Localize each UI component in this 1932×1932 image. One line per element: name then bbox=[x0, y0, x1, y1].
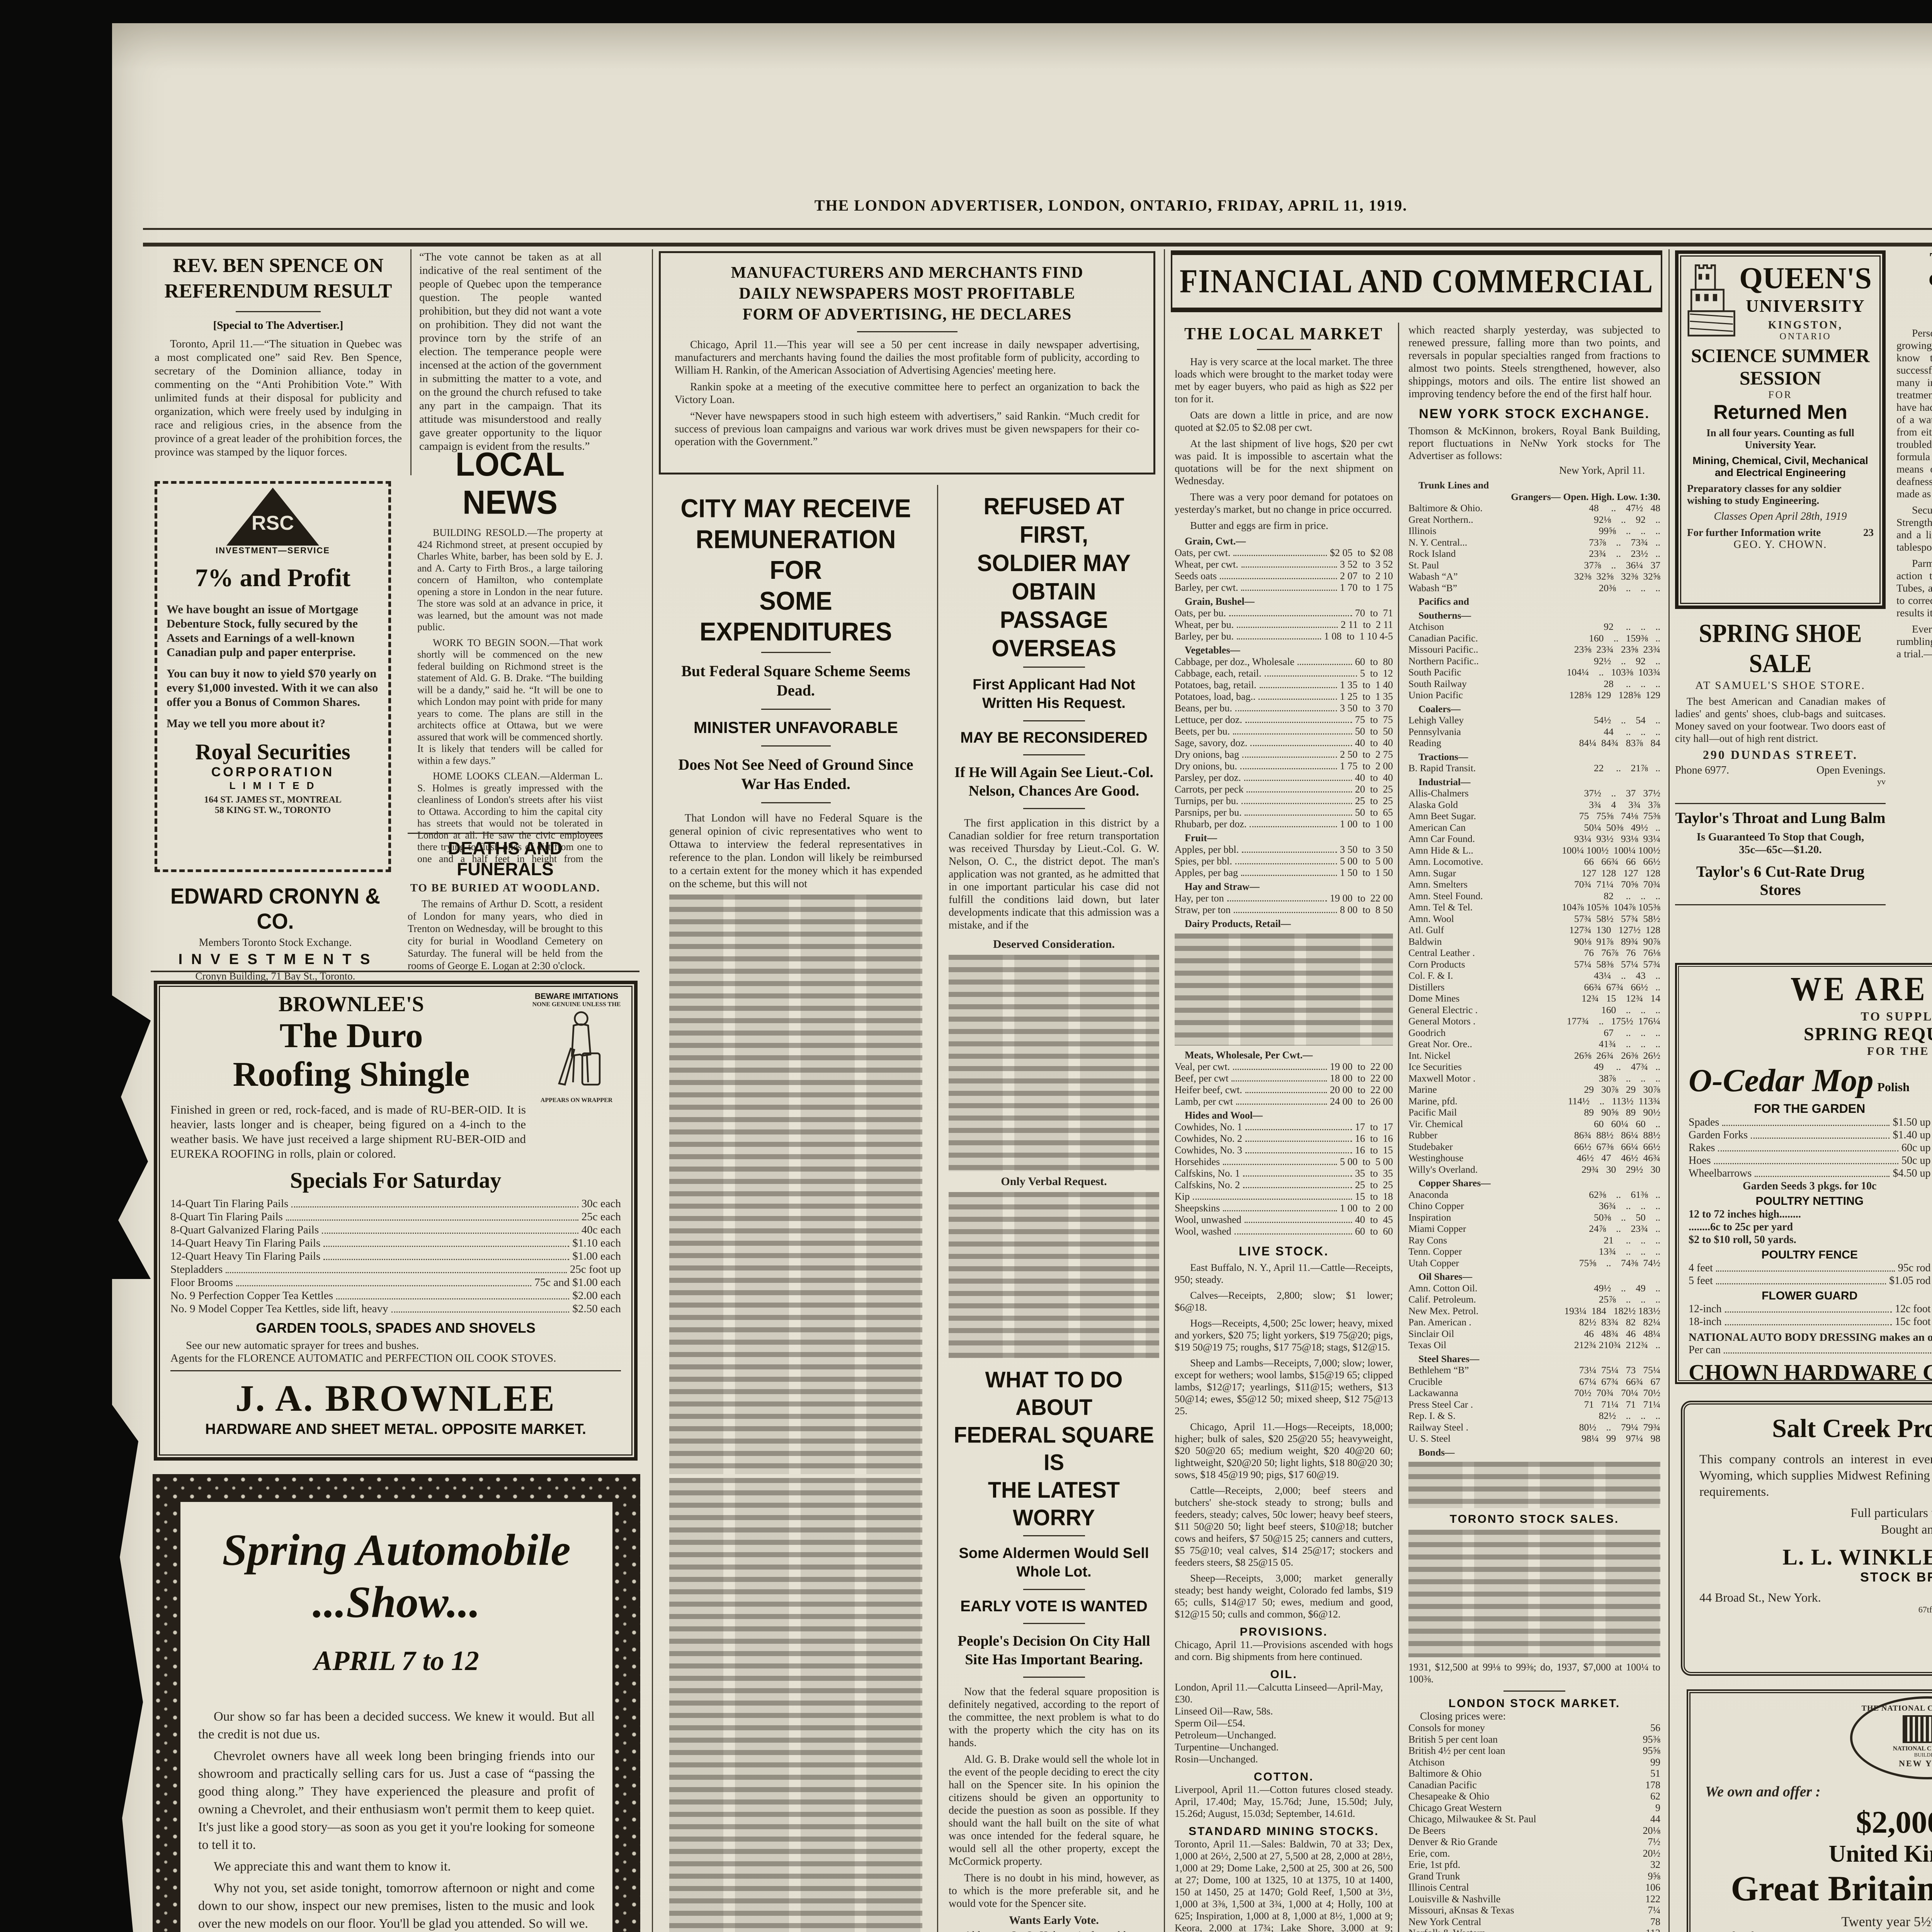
local-market-title: THE LOCAL MARKET bbox=[1175, 324, 1393, 344]
list-item: Linseed Oil—Raw, 58s. bbox=[1175, 1705, 1393, 1717]
subhead: MINISTER UNFAVORABLE bbox=[669, 718, 922, 737]
list-item: Chesapeake & Ohio62 bbox=[1408, 1791, 1660, 1802]
ad-line: Bought and Sold. bbox=[1699, 1523, 1932, 1537]
ad-line: Preparatory classes for any soldier wish… bbox=[1687, 483, 1874, 507]
list-item: Copper Shares— bbox=[1408, 1177, 1660, 1189]
article-catarrh: TO RELIEVE CATARRH, CATARRHAL DEAFNESS A… bbox=[1896, 248, 1932, 957]
ad-headline: Salt Creek Producers Ass'n bbox=[1699, 1413, 1932, 1444]
ad-line: ONTARIO bbox=[1737, 332, 1874, 342]
seal-text: NEW YORK bbox=[1852, 1759, 1932, 1769]
article-text: That London will have no Federal Square … bbox=[669, 812, 922, 891]
london-market-title: LONDON STOCK MARKET. bbox=[1408, 1697, 1660, 1710]
list-item: BUILDING RESOLD.—The property at 424 Ric… bbox=[417, 527, 603, 633]
greeked-text bbox=[949, 1192, 1159, 1358]
list-item: Erie, 1st pfd.32 bbox=[1408, 1859, 1660, 1871]
list-item: St. Paul37⅞ .. 36¼ 37 bbox=[1408, 560, 1660, 571]
financial-banner: FINANCIAL AND COMMERCIAL bbox=[1171, 250, 1662, 312]
list-item: Sage, savory, doz.40 to 40 bbox=[1175, 737, 1393, 749]
ad-line: Dated February 1st, 1917. bbox=[1705, 1930, 1838, 1932]
list-item: Cabbage, per doz., Wholesale60 to 80 bbox=[1175, 656, 1393, 668]
ad-headline: ...Show... bbox=[198, 1575, 595, 1629]
specials-list: 14-Quart Tin Flaring Pails30c each8-Quar… bbox=[170, 1197, 621, 1315]
list-item: Grangers— Open. High. Low. 1:30. bbox=[1408, 491, 1660, 503]
list-item: American Can50¼ 50⅜ 49½ .. bbox=[1408, 822, 1660, 833]
rule bbox=[1023, 808, 1085, 809]
livestock-title: LIVE STOCK. bbox=[1175, 1244, 1393, 1259]
list-item: Studebaker66½ 67⅜ 66¼ 66½ bbox=[1408, 1141, 1660, 1153]
ad-headline: United Kingdom of bbox=[1705, 1840, 1932, 1868]
list-item: Denver & Rio Grande7½ bbox=[1408, 1836, 1660, 1848]
list-item: Rep. I. & S.82½ .. .. .. bbox=[1408, 1410, 1660, 1422]
badge-line: APPEARS ON WRAPPER bbox=[532, 1097, 621, 1104]
garden-list: Spades$1.50 upGarden Forks$1.40 upRakes6… bbox=[1689, 1116, 1930, 1192]
ad-address: 44 Broad St., New York. bbox=[1699, 1590, 1821, 1605]
article-rev-ben-spence: REV. BEN SPENCE ON REFERENDUM RESULT [Sp… bbox=[155, 253, 402, 459]
list-item: Atchison92 .. .. .. bbox=[1408, 621, 1660, 633]
ad-line: TO SUPPLY YOUR bbox=[1689, 1009, 1932, 1024]
article-text: Now that the federal square proposition … bbox=[949, 1685, 1159, 1910]
dots bbox=[1724, 1344, 1932, 1354]
list-item: Amn. Steel Found.82 .. .. .. bbox=[1408, 890, 1660, 902]
market-intro: Hay is very scarce at the local market. … bbox=[1175, 355, 1393, 532]
ad-line: GARDEN TOOLS, SPADES AND SHOVELS bbox=[170, 1320, 621, 1336]
local-news-items: BUILDING RESOLD.—The property at 424 Ric… bbox=[417, 527, 603, 864]
list-item: South Railway28 .. .. .. bbox=[1408, 678, 1660, 690]
ad-subhead: STOCK BROKERS bbox=[1699, 1570, 1932, 1585]
list-item: Union Pacific128⅝ 129 128⅝ 129 bbox=[1408, 689, 1660, 701]
list-item: London, April 11.—Calcutta Linseed—April… bbox=[1175, 1681, 1393, 1705]
deaths-title: DEATHS AND FUNERALS bbox=[408, 838, 603, 879]
list-item: Distillers66¾ 67¾ 66½ .. bbox=[1408, 981, 1660, 993]
seal-text: THE NATIONAL CITY COMPANY bbox=[1852, 1704, 1932, 1713]
list-item: Chevrolet owners have all week long been… bbox=[198, 1747, 595, 1854]
list-item: Cabbage, each, retail.5 to 12 bbox=[1175, 668, 1393, 679]
section-title: LOCAL NEWS bbox=[417, 446, 603, 522]
rule bbox=[236, 311, 321, 312]
deck: Does Not See Need of Ground Since War Ha… bbox=[669, 755, 922, 794]
headline: CATARRHAL DEAFNESS bbox=[1896, 269, 1932, 291]
rule bbox=[408, 833, 603, 834]
list-item: Grain, Bushel— bbox=[1175, 596, 1393, 607]
list-item: Sheep and Lambs—Receipts, 7,000; slow; l… bbox=[1175, 1357, 1393, 1417]
ad-phone: Phone 6977. bbox=[1675, 764, 1729, 777]
list-item: South Pacific104¼ .. 103⅜ 103¾ bbox=[1408, 667, 1660, 678]
ad-headline: SCIENCE SUMMER SESSION bbox=[1687, 344, 1874, 389]
ad-code: yv bbox=[1675, 777, 1886, 787]
headline: PASSAGE OVERSEAS bbox=[949, 606, 1159, 663]
list-item: Straw, per ton8 00 to 8 50 bbox=[1175, 904, 1393, 916]
ad-auto-show: Spring Automobile ...Show... APRIL 7 to … bbox=[153, 1474, 640, 1932]
list-item: Pan. American .82½ 83¾ 82 82¼ bbox=[1408, 1316, 1660, 1328]
subhead: MAY BE RECONSIDERED bbox=[949, 729, 1159, 747]
london-market-intro: Closing prices were: bbox=[1408, 1710, 1660, 1722]
ad-line: In all four years. Counting as full Univ… bbox=[1687, 427, 1874, 451]
list-item: Dry onions, bag2 50 to 2 75 bbox=[1175, 749, 1393, 760]
list-item: Hay is very scarce at the local market. … bbox=[1175, 355, 1393, 405]
deck: But Federal Square Scheme Seems Dead. bbox=[669, 662, 922, 700]
mining-text: Toronto, April 11.—Sales: Baldwin, 70 at… bbox=[1175, 1838, 1393, 1932]
list-item: Wool, unwashed40 to 45 bbox=[1175, 1214, 1393, 1226]
ad-line: We own and offer : bbox=[1705, 1783, 1932, 1800]
list-item: Apples, per bbl.3 50 to 3 50 bbox=[1175, 844, 1393, 855]
guard-list: 12-inch12c foot18-inch15c foot bbox=[1689, 1303, 1930, 1328]
list-item: Cowhides, No. 216 to 16 bbox=[1175, 1133, 1393, 1145]
list-item: Cattle—Receipts, 2,000; beef steers and … bbox=[1175, 1485, 1393, 1568]
nyse-intro: Thomson & McKinnon, brokers, Royal Bank … bbox=[1408, 425, 1660, 462]
seal-text: BUILDING bbox=[1852, 1752, 1932, 1759]
list-item: 14-Quart Tin Flaring Pails30c each bbox=[170, 1197, 621, 1210]
oil-title: OIL. bbox=[1175, 1668, 1393, 1681]
ad-line: Open Evenings. bbox=[1816, 764, 1886, 777]
list-item: Coalers— bbox=[1408, 703, 1660, 715]
headline: SOME EXPENDITURES bbox=[669, 585, 922, 647]
list-item: Allis-Chalmers37½ .. 37 37½ bbox=[1408, 787, 1660, 799]
list-item: Cowhides, No. 316 to 15 bbox=[1175, 1145, 1393, 1156]
divider bbox=[1398, 323, 1399, 1932]
cotton-title: COTTON. bbox=[1175, 1770, 1393, 1784]
list-item: Canadian Pacific.160 .. 159⅜ .. bbox=[1408, 633, 1660, 644]
rule bbox=[170, 1370, 621, 1371]
deaths-body: The remains of Arthur D. Scott, a reside… bbox=[408, 898, 603, 972]
list-item: Chicago Great Western9 bbox=[1408, 1802, 1660, 1814]
list-item: Ray Cons21 .. .. .. bbox=[1408, 1235, 1660, 1246]
list-item: Oats are down a little in price, and are… bbox=[1175, 409, 1393, 434]
list-item: Tenn. Copper13¾ .. .. .. bbox=[1408, 1246, 1660, 1257]
list-item: Northern Pacific..92½ .. 92 .. bbox=[1408, 655, 1660, 667]
list-item: Chicago, Milwaukee & St. Paul44 bbox=[1408, 1813, 1660, 1825]
article-text: Toronto, April 11.—“The situation in Que… bbox=[155, 337, 402, 459]
rule bbox=[1257, 349, 1311, 350]
newspaper-page: THE LONDON ADVERTISER, LONDON, ONTARIO, … bbox=[0, 0, 1932, 1932]
list-item: Marine, pfd.114½ .. 113½ 113¾ bbox=[1408, 1095, 1660, 1107]
rsc-logo-text: RSC bbox=[252, 512, 294, 535]
list-item: No. 9 Perfection Copper Tea Kettles$2.00… bbox=[170, 1289, 621, 1302]
list-item: Bethlehem “B”73¼ 75¼ 73 75¼ bbox=[1408, 1364, 1660, 1376]
list-item: Ice Securities49 .. 47¾ .. bbox=[1408, 1061, 1660, 1073]
ad-address: 290 DUNDAS STREET. bbox=[1675, 748, 1886, 762]
ad-line: KINGSTON, bbox=[1737, 319, 1874, 332]
list-item: Garden Seeds 3 pkgs. for 10c bbox=[1689, 1180, 1930, 1192]
greeked-text bbox=[949, 955, 1159, 1171]
list-item: General Electric .160 .. .. .. bbox=[1408, 1004, 1660, 1016]
ad-taylors: Taylor's Throat and Lung Balm Is Guarant… bbox=[1675, 803, 1886, 905]
list-item: At the last shipment of live hogs, $20 p… bbox=[1175, 437, 1393, 487]
list-item: Wheat, per bu.2 11 to 2 11 bbox=[1175, 619, 1393, 631]
section-local-news: LOCAL NEWS BUILDING RESOLD.—The property… bbox=[417, 447, 603, 864]
ad-line: CORPORATION bbox=[167, 765, 379, 780]
list-item: Chicago, April 11.—Hogs—Receipts, 18,000… bbox=[1175, 1421, 1393, 1481]
divider bbox=[1668, 249, 1670, 1932]
list-item: Rhubarb, per doz.1 00 to 1 00 bbox=[1175, 818, 1393, 830]
headline: DAILY NEWSPAPERS MOST PROFITABLE bbox=[675, 283, 1139, 304]
rule bbox=[1675, 904, 1886, 905]
toronto-sales-tail: 1931, $12,500 at 99⅛ to 99⅜; do, 1937, $… bbox=[1408, 1661, 1660, 1685]
list-item: Stepladders25c foot up bbox=[170, 1263, 621, 1276]
list-item: Hay and Straw— bbox=[1175, 881, 1393, 893]
list-item: Cowhides, No. 117 to 17 bbox=[1175, 1121, 1393, 1133]
greeked-text bbox=[1175, 934, 1393, 1046]
rsc-logo-sub: INVESTMENT—SERVICE bbox=[167, 546, 379, 556]
list-item: Wheat, per cwt.3 52 to 3 52 bbox=[1175, 559, 1393, 570]
list-item: Corn Products57¼ 58⅜ 57¼ 57¾ bbox=[1408, 959, 1660, 970]
rule bbox=[1023, 1535, 1085, 1536]
badge-line: NONE GENUINE UNLESS THE bbox=[532, 1001, 621, 1008]
list-item: Willy's Overland.29¾ 30 29½ 30 bbox=[1408, 1164, 1660, 1175]
provisions-text: Chicago, April 11.—Provisions ascended w… bbox=[1175, 1639, 1393, 1663]
list-item: Crucible67¼ 67¾ 66¾ 67 bbox=[1408, 1376, 1660, 1388]
fence-list: 4 feet95c rod5 feet$1.05 rod bbox=[1689, 1262, 1930, 1287]
list-item: $2 to $10 roll, 50 yards. bbox=[1689, 1233, 1930, 1246]
headline: REFERENDUM RESULT bbox=[155, 279, 402, 304]
ad-line: L I M I T E D bbox=[167, 780, 379, 792]
ad-brand-sub: Polish bbox=[1877, 1080, 1910, 1094]
list-item: Now that the federal square proposition … bbox=[949, 1685, 1159, 1749]
list-item: Atl. Gulf127¾ 130 127½ 128 bbox=[1408, 924, 1660, 936]
rule bbox=[761, 652, 831, 653]
list-item: Anaconda62⅜ .. 61⅜ .. bbox=[1408, 1189, 1660, 1201]
list-item: 12 to 72 inches high........ bbox=[1689, 1208, 1930, 1221]
list-item: Parsnips, per bu.50 to 65 bbox=[1175, 807, 1393, 818]
list-item: Canadian Pacific178 bbox=[1408, 1779, 1660, 1791]
list-item: Col. F. & I.43¼ .. 43 .. bbox=[1408, 970, 1660, 981]
list-item: Garden Forks$1.40 up bbox=[1689, 1129, 1930, 1141]
nyse-dateline: New York, April 11. bbox=[1408, 464, 1645, 476]
list-item: Wool, washed60 to 60 bbox=[1175, 1226, 1393, 1237]
list-item: Seeds oats2 07 to 2 10 bbox=[1175, 570, 1393, 582]
list-item: Baldwin90⅛ 91⅞ 89¾ 90⅞ bbox=[1408, 936, 1660, 947]
deaths-sub: TO BE BURIED AT WOODLAND. bbox=[408, 882, 603, 895]
rule bbox=[761, 802, 831, 803]
ad-chown-hardware: WE ARE READY TO SUPPLY YOUR SPRING REQUI… bbox=[1675, 963, 1932, 1384]
headline: REMUNERATION FOR bbox=[669, 524, 922, 585]
list-item: Great Nor. Ore..41¾ .. .. .. bbox=[1408, 1038, 1660, 1050]
list-item: “Never have newspapers stood in such hig… bbox=[675, 410, 1139, 448]
list-item: Baltimore & Ohio.48 .. 47½ 48 bbox=[1408, 502, 1660, 514]
list-item: Oats, per cwt.$2 05 to $2 08 bbox=[1175, 547, 1393, 559]
list-item: Oil Shares— bbox=[1408, 1271, 1660, 1282]
list-item: Great Northern..92⅛ .. 92 .. bbox=[1408, 514, 1660, 526]
list-item: Inspiration50⅜ .. 50 .. bbox=[1408, 1212, 1660, 1223]
deck: People's Decision On City Hall Site Has … bbox=[949, 1632, 1159, 1669]
list-item: Baltimore & Ohio51 bbox=[1408, 1768, 1660, 1779]
advertiser-name: Taylor's 6 Cut-Rate Drug Stores bbox=[1675, 862, 1886, 899]
section-head: FLOWER GUARD bbox=[1689, 1289, 1930, 1303]
subhead: EARLY VOTE IS WANTED bbox=[949, 1598, 1159, 1615]
list-item: Horsehides5 00 to 5 00 bbox=[1175, 1156, 1393, 1168]
advertiser-name: Royal Securities bbox=[167, 739, 379, 765]
list-item: Dry onions, bu.1 75 to 2 00 bbox=[1175, 760, 1393, 772]
rule bbox=[151, 971, 639, 972]
list-item: 5 feet$1.05 rod bbox=[1689, 1274, 1930, 1287]
list-item: Lackawanna70½ 70¾ 70¼ 70½ bbox=[1408, 1387, 1660, 1399]
list-item: Vegetables— bbox=[1175, 645, 1393, 656]
ruberoid-badge: BEWARE IMITATIONS NONE GENUINE UNLESS TH… bbox=[532, 992, 621, 1104]
list-item: Amn. Smelters70¾ 71¼ 70⅝ 70¾ bbox=[1408, 879, 1660, 890]
headline: CITY MAY RECEIVE bbox=[669, 497, 922, 524]
ad-queens-university: QUEEN'S UNIVERSITY KINGSTON, ONTARIO SCI… bbox=[1675, 250, 1886, 609]
list-item: Sinclair Oil46 48¾ 46 48¼ bbox=[1408, 1328, 1660, 1340]
ad-paragraph: We have bought an issue of Mortgage Debe… bbox=[167, 602, 379, 659]
chown-left-column: O-Cedar Mop Polish FOR THE GARDEN Spades… bbox=[1689, 1062, 1930, 1328]
list-item: General Motors .177¾ .. 175½ 176¼ bbox=[1408, 1015, 1660, 1027]
list-item: Spades$1.50 up bbox=[1689, 1116, 1930, 1129]
ad-line: Twenty year 5½% Gold Bonds bbox=[1705, 1913, 1932, 1930]
list-item: Bonds— bbox=[1408, 1447, 1660, 1458]
list-item: Pacifics and bbox=[1408, 596, 1660, 607]
ad-body: Finished in green or red, rock-faced, an… bbox=[170, 1102, 526, 1161]
list-item: Grain, Cwt.— bbox=[1175, 536, 1393, 547]
ad-body: Our show so far has been a decided succe… bbox=[198, 1708, 595, 1932]
special-credit: [Special to The Advertiser.] bbox=[155, 319, 402, 332]
list-item: Alaska Gold3¾ 4 3¾ 3⅞ bbox=[1408, 799, 1660, 811]
headline: AND HEAD NOISES bbox=[1896, 291, 1932, 312]
ad-brownlee: BEWARE IMITATIONS NONE GENUINE UNLESS TH… bbox=[154, 981, 638, 1461]
list-item: Trunk Lines and bbox=[1408, 480, 1660, 491]
nyse-title: NEW YORK STOCK EXCHANGE. bbox=[1408, 406, 1660, 422]
list-item: 14-Quart Heavy Tin Flaring Pails$1.10 ea… bbox=[170, 1236, 621, 1250]
divider bbox=[1164, 249, 1165, 1932]
list-item: De Beers20⅛ bbox=[1408, 1825, 1660, 1837]
list-item: Barley, per cwt.1 70 to 1 75 bbox=[1175, 582, 1393, 594]
ad-line: Members Toronto Stock Exchange. bbox=[153, 937, 398, 949]
ad-signature: GEO. Y. CHOWN. bbox=[1687, 539, 1874, 551]
list-item: British 5 per cent loan95⅜ bbox=[1408, 1734, 1660, 1745]
list-item: Lehigh Valley54½ .. 54 .. bbox=[1408, 714, 1660, 726]
article-refused-passage: REFUSED AT FIRST, SOLDIER MAY OBTAIN PAS… bbox=[949, 497, 1159, 1358]
list-item: Lamb, per cwt24 00 to 26 00 bbox=[1175, 1096, 1393, 1107]
cotton-text: Liverpool, April 11.—Cotton futures clos… bbox=[1175, 1784, 1393, 1820]
advertiser-name: EDWARD CRONYN & CO. bbox=[153, 884, 398, 934]
bank-building-icon bbox=[1903, 1715, 1932, 1743]
deck: If He Will Again See Lieut.-Col. Nelson,… bbox=[949, 763, 1159, 800]
ad-address: 164 ST. JAMES ST., MONTREAL bbox=[167, 795, 379, 805]
list-item: Calves—Receipts, 2,800; slow; $1 lower; … bbox=[1175, 1289, 1393, 1313]
article-text: Chicago, April 11.—This year will see a … bbox=[675, 338, 1139, 448]
list-item: Vir. Chemical60 60¼ 60 .. bbox=[1408, 1118, 1660, 1130]
ad-code: 67tf bbox=[1699, 1605, 1932, 1615]
greeked-text bbox=[1408, 1462, 1660, 1508]
masthead-rule-top bbox=[143, 228, 1932, 230]
ad-number: 23 bbox=[1863, 527, 1874, 539]
ad-salt-creek: Salt Creek Producers Ass'n This company … bbox=[1681, 1401, 1932, 1676]
list-item: Veal, per cwt.19 00 to 22 00 bbox=[1175, 1061, 1393, 1073]
auto-dressing-line: NATIONAL AUTO BODY DRESSING makes an old… bbox=[1689, 1331, 1932, 1344]
rsc-triangle-logo: RSC bbox=[226, 488, 319, 546]
list-item: Chicago, April 11.—This year will see a … bbox=[675, 338, 1139, 377]
ad-headline: SPRING SHOE SALE bbox=[1675, 619, 1886, 679]
list-item: Lettuce, per doz.75 to 75 bbox=[1175, 714, 1393, 726]
list-item: 8-Quart Galvanized Flaring Pails40c each bbox=[170, 1223, 621, 1236]
ad-body: The best American and Canadian makes of … bbox=[1675, 695, 1886, 745]
list-item: British 4½ per cent loan95⅝ bbox=[1408, 1745, 1660, 1757]
list-item: Rubber86¾ 88½ 86¼ 88½ bbox=[1408, 1129, 1660, 1141]
column-4: REFUSED AT FIRST, SOLDIER MAY OBTAIN PAS… bbox=[949, 497, 1159, 1932]
list-item: 8-Quart Tin Flaring Pails25c each bbox=[170, 1210, 621, 1223]
ad-body: This company controls an interest in eve… bbox=[1699, 1451, 1932, 1500]
ad-line: Full particulars upon request. bbox=[1699, 1506, 1932, 1520]
rule bbox=[1503, 1690, 1565, 1692]
ad-line: Agents for the FLORENCE AUTOMATIC and PE… bbox=[170, 1352, 621, 1365]
list-item: Railway Steel .80½ .. 79¼ 79¾ bbox=[1408, 1422, 1660, 1433]
list-item: We appreciate this and want them to know… bbox=[198, 1858, 595, 1876]
subhead: Wants Early Vote. bbox=[949, 1914, 1159, 1927]
list-item: Tractions— bbox=[1408, 751, 1660, 763]
advertiser-name: CHOWN HARDWARE CO. bbox=[1689, 1359, 1932, 1384]
ad-national-city: THE NATIONAL CITY COMPANY NATIONAL CITY … bbox=[1687, 1689, 1932, 1932]
subhead: Only Verbal Request. bbox=[949, 1175, 1159, 1188]
rule bbox=[761, 745, 831, 747]
list-item: Miami Copper24⅞ .. 23¾ .. bbox=[1408, 1223, 1660, 1235]
deck: Some Aldermen Would Sell Whole Lot. bbox=[949, 1544, 1159, 1581]
ad-headline: 7% and Profit bbox=[167, 563, 379, 593]
headline: MANUFACTURERS AND MERCHANTS FIND bbox=[675, 262, 1139, 283]
headline: FORM OF ADVERTISING, HE DECLARES bbox=[675, 304, 1139, 325]
list-item: Reading84¼ 84¾ 83⅞ 84 bbox=[1408, 737, 1660, 749]
headline: REV. BEN SPENCE ON bbox=[155, 253, 402, 279]
list-item: Wheelbarrows$4.50 up bbox=[1689, 1167, 1930, 1180]
list-item: Sheep—Receipts, 3,000; market generally … bbox=[1175, 1572, 1393, 1620]
list-item: Parsley, per doz.40 to 40 bbox=[1175, 772, 1393, 784]
list-item: Southerns— bbox=[1408, 610, 1660, 621]
toronto-sales-title: TORONTO STOCK SALES. bbox=[1408, 1513, 1660, 1526]
list-item: 4 feet95c rod bbox=[1689, 1262, 1930, 1274]
market-opening-text: which reacted sharply yesterday, was sub… bbox=[1408, 324, 1660, 400]
ad-amount: $2,000,000 bbox=[1705, 1804, 1932, 1840]
list-item: Kip15 to 18 bbox=[1175, 1191, 1393, 1202]
financial-col-b: which reacted sharply yesterday, was sub… bbox=[1408, 324, 1660, 1932]
advertiser-name: QUEEN'S bbox=[1737, 261, 1874, 296]
article-text: The first application in this district b… bbox=[949, 817, 1159, 932]
ad-line: Mining, Chemical, Civil, Mechanical and … bbox=[1687, 455, 1874, 479]
list-item: Our show so far has been a decided succe… bbox=[198, 1708, 595, 1743]
list-item: Press Steel Car .71 71¼ 71 71¼ bbox=[1408, 1399, 1660, 1410]
nyse-table: Trunk Lines andGrangers— Open. High. Low… bbox=[1408, 480, 1660, 1508]
headline: FEDERAL SQUARE IS bbox=[949, 1421, 1159, 1476]
list-item: Apples, per bag1 50 to 1 50 bbox=[1175, 867, 1393, 879]
list-item: Persons suffering from catarrhal deafnes… bbox=[1896, 327, 1932, 500]
list-item: Sperm Oil—£54. bbox=[1175, 1717, 1393, 1729]
headline: WHAT TO DO ABOUT bbox=[949, 1366, 1159, 1421]
list-item: Fruit— bbox=[1175, 832, 1393, 844]
list-item: Dome Mines12¾ 15 12¾ 14 bbox=[1408, 993, 1660, 1004]
ad-line: Is Guaranteed To Stop that Cough, bbox=[1675, 831, 1886, 844]
article-text: Alderman L. S. Holmes is favorable to an… bbox=[949, 1929, 1159, 1932]
list-item: Industrial— bbox=[1408, 776, 1660, 788]
headline: REFUSED AT FIRST, bbox=[949, 497, 1159, 549]
livestock-text: East Buffalo, N. Y., April 11.—Cattle—Re… bbox=[1175, 1262, 1393, 1620]
list-item: Carrots, per peck20 to 25 bbox=[1175, 784, 1393, 795]
rule bbox=[761, 709, 831, 710]
list-item: Missouri Pacific..23⅝ 23¾ 23⅝ 23¾ bbox=[1408, 644, 1660, 655]
list-item: Chino Copper36¾ .. .. .. bbox=[1408, 1200, 1660, 1212]
list-item: Floor Brooms75c and $1.00 each bbox=[170, 1276, 621, 1289]
list-item: Rakes60c up bbox=[1689, 1141, 1930, 1154]
list-item: Hogs—Receipts, 4,500; 25c lower; heavy, … bbox=[1175, 1317, 1393, 1353]
list-item: Petroleum—Unchanged. bbox=[1175, 1729, 1393, 1741]
list-item: East Buffalo, N. Y., April 11.—Cattle—Re… bbox=[1175, 1262, 1393, 1286]
national-city-seal: THE NATIONAL CITY COMPANY NATIONAL CITY … bbox=[1850, 1696, 1932, 1779]
list-item: Meats, Wholesale, Per Cwt.— bbox=[1175, 1049, 1393, 1061]
list-item: Why not you, set aside tonight, tomorrow… bbox=[198, 1879, 595, 1932]
list-item: Louisville & Nashville122 bbox=[1408, 1893, 1660, 1905]
list-item: Calfskins, No. 135 to 35 bbox=[1175, 1168, 1393, 1179]
list-item: Amn. Sugar127 128 127 128 bbox=[1408, 867, 1660, 879]
list-item: ........6c to 25c per yard bbox=[1689, 1221, 1930, 1233]
section-deaths: DEATHS AND FUNERALS TO BE BURIED AT WOOD… bbox=[408, 833, 603, 972]
masthead-rule-bottom bbox=[143, 243, 1932, 247]
headline: TO RELIEVE CATARRH, bbox=[1896, 248, 1932, 269]
list-item: Ald. G. B. Drake would sell the whole lo… bbox=[949, 1753, 1159, 1868]
